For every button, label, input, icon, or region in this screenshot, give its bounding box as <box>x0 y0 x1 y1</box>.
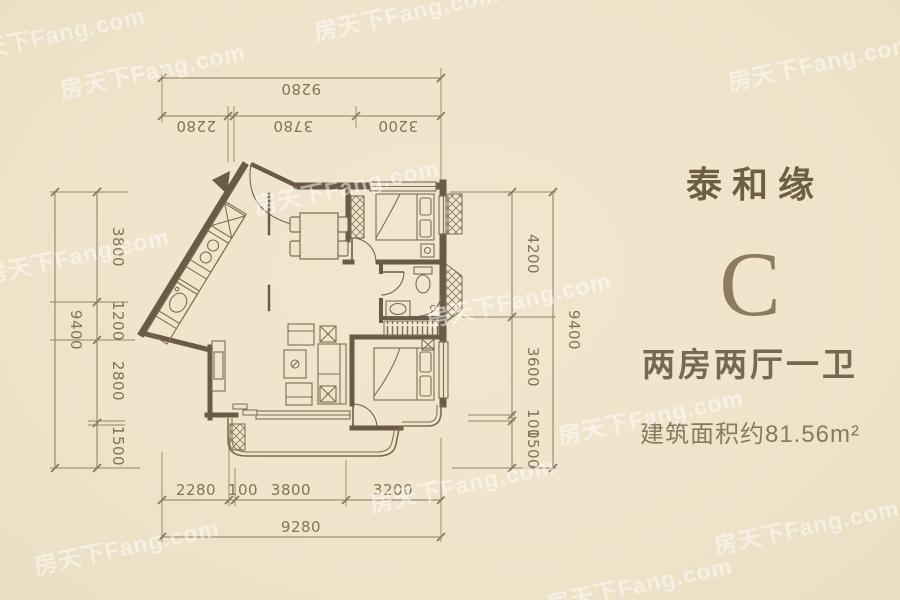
dim-top-total: 9280 <box>281 80 321 98</box>
bathroom-door <box>381 272 404 295</box>
dim-right-seg: 1500 <box>524 429 542 469</box>
dim-top-seg: 3200 <box>378 117 418 135</box>
room-configuration: 两房两厅一卫 <box>610 338 890 386</box>
toilet-symbol <box>414 267 432 293</box>
bed-symbol <box>376 194 434 240</box>
project-title: 泰和缘 <box>610 156 890 208</box>
area-text: 建筑面积约81.56m² <box>610 414 890 449</box>
dining-table-symbol <box>290 213 348 259</box>
shower-symbol <box>419 294 441 316</box>
wardrobe-symbol <box>351 196 364 238</box>
bathroom-sink-symbol <box>386 301 410 317</box>
nightstand-symbol <box>421 244 434 257</box>
dim-bottom-total: 9280 <box>281 518 321 536</box>
kitchen-counter-symbol <box>147 202 247 344</box>
bedroom1-furniture <box>351 194 434 257</box>
bathroom-fixtures <box>386 267 441 317</box>
dim-left-seg: 1500 <box>109 426 127 466</box>
doors <box>212 164 404 428</box>
floorplan-page: 9280 2280 3780 3200 2280 100 3800 3200 9… <box>0 0 900 600</box>
utility-louver-symbol <box>384 321 439 335</box>
balcony-cabinet-symbol <box>230 424 245 450</box>
living-room-furniture <box>212 324 346 405</box>
info-panel: 泰和缘 C 两房两厅一卫 建筑面积约81.56m² <box>610 0 890 600</box>
dim-right-total: 9400 <box>565 310 583 350</box>
dimension-lines: 9280 2280 3780 3200 2280 100 3800 3200 9… <box>50 68 583 542</box>
entry-marker-icon <box>212 171 230 194</box>
walls <box>142 166 443 428</box>
tv-cabinet-symbol <box>212 341 225 391</box>
balcony-wall <box>228 418 399 456</box>
bay-window <box>399 404 441 429</box>
dim-bottom-seg: 100 <box>228 481 258 499</box>
dim-right-seg: 3600 <box>524 347 542 387</box>
bed-symbol <box>374 348 434 400</box>
dim-left-seg: 1200 <box>109 301 127 341</box>
ac-platform-symbol <box>446 194 462 234</box>
dim-right-seg: 4200 <box>524 234 542 274</box>
dim-left-total: 9400 <box>67 310 85 350</box>
unit-letter: C <box>610 238 890 330</box>
dim-left-seg: 3800 <box>109 227 127 267</box>
dim-top-seg: 3780 <box>273 117 313 135</box>
dim-bottom-seg: 2280 <box>176 481 216 499</box>
bedroom2-door <box>353 404 377 428</box>
bedroom1-door <box>352 238 376 262</box>
dim-top-seg: 2280 <box>176 117 216 135</box>
dim-left-seg: 2800 <box>109 361 127 401</box>
bedroom2-furniture <box>374 339 434 400</box>
ac-platform-symbol <box>446 264 462 322</box>
dim-bottom-seg: 3200 <box>373 481 413 499</box>
dim-bottom-seg: 3800 <box>271 481 311 499</box>
stove-symbol <box>190 231 228 273</box>
